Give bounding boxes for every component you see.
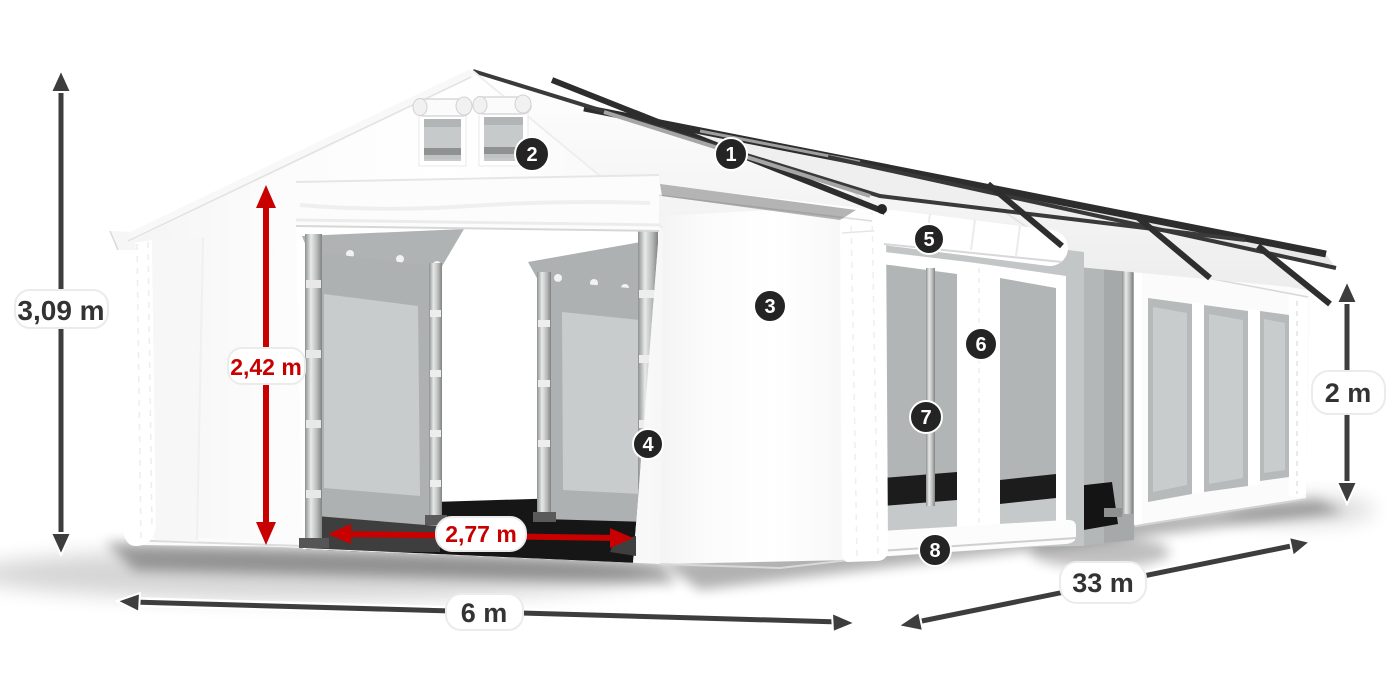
svg-text:4: 4 xyxy=(642,434,654,456)
svg-text:2,77 m: 2,77 m xyxy=(445,521,517,547)
svg-text:3,09 m: 3,09 m xyxy=(17,295,104,326)
svg-text:2,42 m: 2,42 m xyxy=(230,354,302,380)
svg-text:2 m: 2 m xyxy=(1325,378,1372,408)
svg-text:5: 5 xyxy=(923,229,934,251)
svg-text:8: 8 xyxy=(929,540,940,562)
svg-text:1: 1 xyxy=(725,144,736,166)
svg-text:6 m: 6 m xyxy=(461,598,508,628)
svg-text:2: 2 xyxy=(526,144,537,166)
svg-text:3: 3 xyxy=(764,296,775,318)
svg-text:7: 7 xyxy=(920,407,931,429)
svg-text:33 m: 33 m xyxy=(1072,568,1134,598)
svg-text:6: 6 xyxy=(975,334,986,356)
